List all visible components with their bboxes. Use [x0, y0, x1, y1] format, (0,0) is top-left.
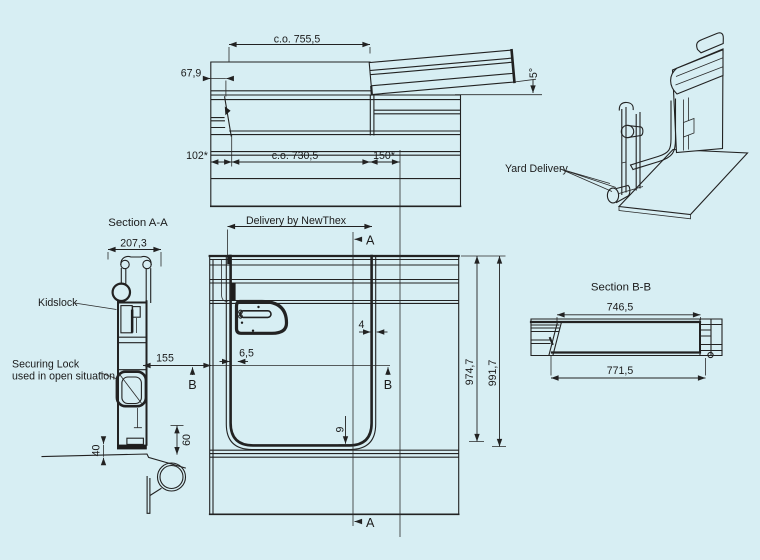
dim-746-5: 746,5 — [607, 302, 634, 314]
dim-207-3: 207,3 — [120, 238, 147, 250]
dim-67-9: 67,9 — [181, 68, 202, 80]
dim-150: 150* — [373, 150, 395, 162]
dim-6-5: 6,5 — [239, 348, 254, 360]
dim-155: 155 — [156, 353, 174, 365]
dim-flap-angle: 5° — [528, 68, 540, 78]
dim-9: 9 — [335, 426, 347, 432]
securing-lock-label-1: Securing Lock — [12, 359, 80, 371]
delivery-by-newthex-label: Delivery by NewThex — [246, 215, 347, 227]
section-marker-b-right: B — [384, 378, 392, 392]
dim-771-5: 771,5 — [607, 365, 634, 377]
section-bb-title: Section B-B — [591, 282, 651, 294]
dim-4: 4 — [359, 319, 365, 331]
dim-974-7: 974,7 — [464, 359, 476, 386]
dim-60: 60 — [181, 434, 193, 446]
yard-delivery-label: Yard Delivery — [505, 163, 568, 175]
dim-40: 40 — [91, 445, 103, 457]
section-aa-title: Section A-A — [108, 217, 168, 229]
section-marker-a-bottom: A — [366, 516, 375, 530]
section-marker-a-top: A — [366, 234, 375, 248]
dim-co-730: c.o. 730,5 — [272, 150, 319, 162]
dim-991-7: 991,7 — [487, 360, 499, 387]
dim-co-755: c.o. 755,5 — [274, 34, 321, 46]
section-marker-b-left: B — [188, 378, 196, 392]
kidslock-label: Kidslock — [38, 297, 78, 309]
dim-102: 102* — [186, 150, 208, 162]
technical-drawing: c.o. 755,5 67,9 102* c.o. 730,5 150* 5° — [0, 0, 760, 560]
